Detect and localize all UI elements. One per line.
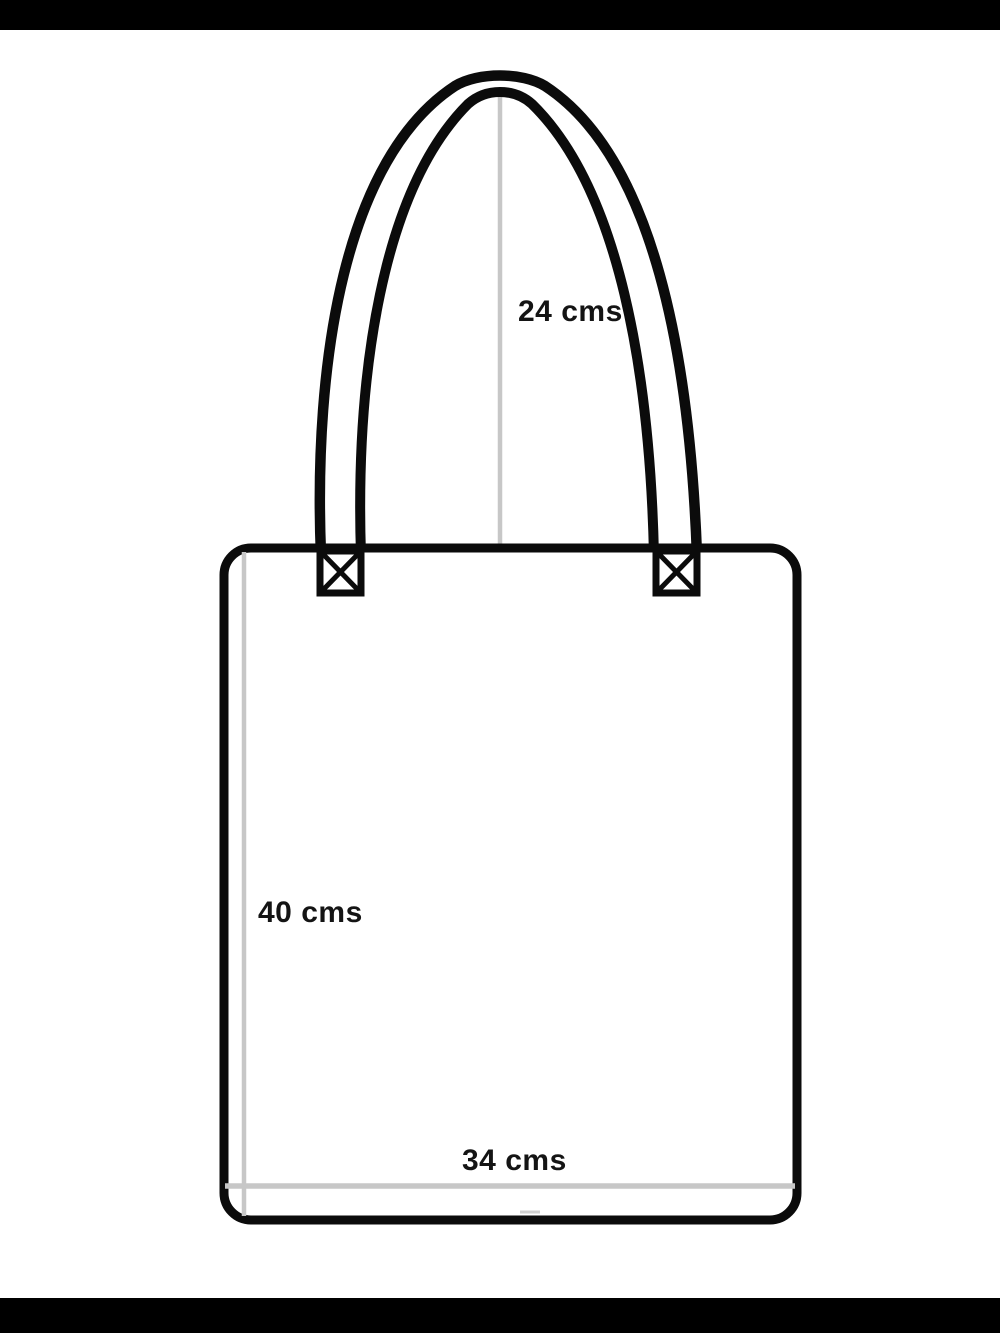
left-strap-stitch-box-icon xyxy=(320,551,361,593)
handle-drop-label: 24 cms xyxy=(518,295,623,328)
bag-body-outline xyxy=(224,548,797,1220)
screenshot-canvas: 24 cms 40 cms 34 cms xyxy=(0,0,1000,1333)
bag-height-label: 40 cms xyxy=(258,896,363,929)
tote-bag-diagram: 24 cms 40 cms 34 cms xyxy=(0,0,1000,1333)
bag-width-label: 34 cms xyxy=(462,1144,567,1177)
right-strap-stitch-box-icon xyxy=(656,551,697,593)
